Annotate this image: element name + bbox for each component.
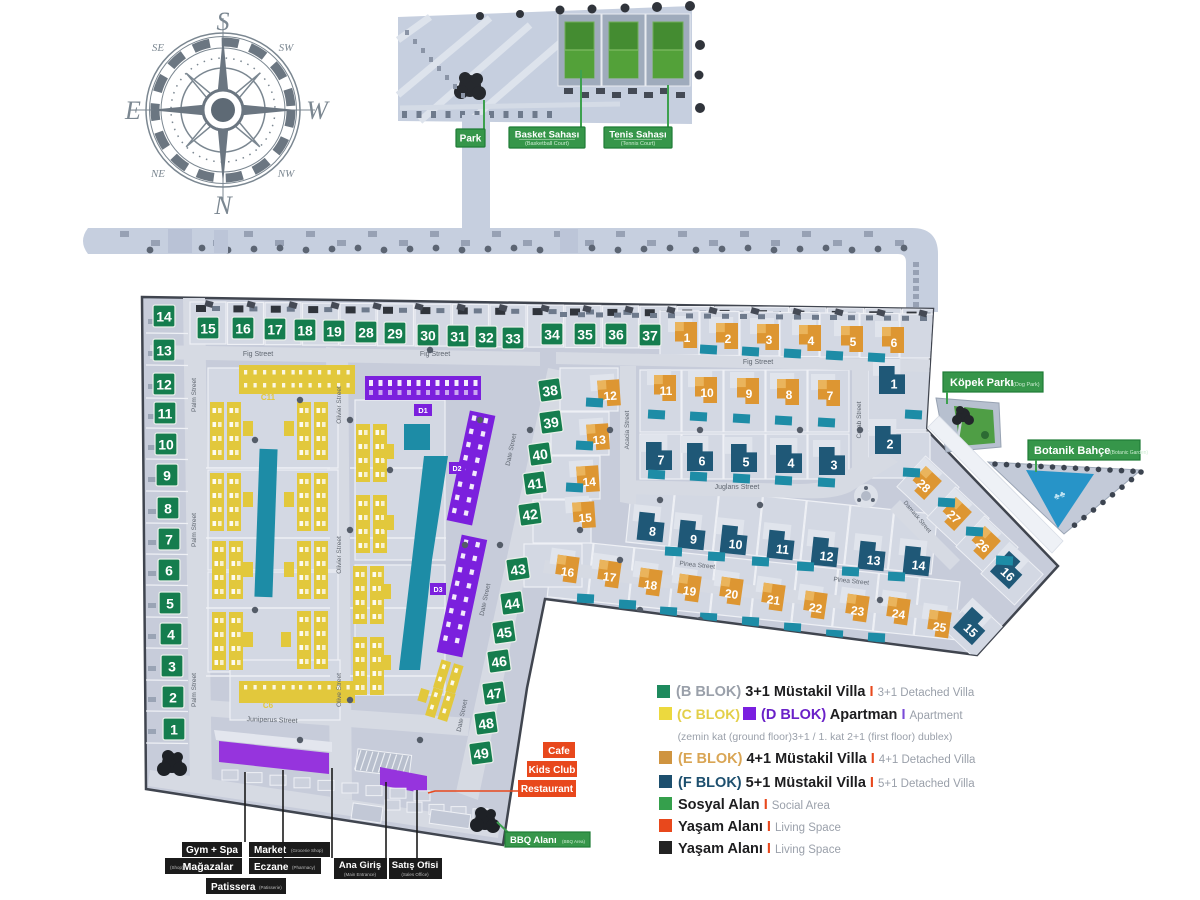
svg-text:(BBQ Area): (BBQ Area) [562, 839, 586, 844]
svg-text:15: 15 [200, 321, 216, 337]
svg-text:40: 40 [531, 446, 549, 464]
svg-text:10: 10 [700, 386, 714, 400]
svg-text:Juglans Street: Juglans Street [715, 484, 760, 491]
svg-text:(Basketball Court): (Basketball Court) [525, 141, 569, 147]
svg-text:(Patisserie): (Patisserie) [259, 885, 282, 890]
svg-text:30: 30 [420, 328, 436, 344]
svg-text:Mağazalar: Mağazalar [183, 861, 234, 873]
svg-text:(Sales Office): (Sales Office) [401, 872, 429, 877]
svg-text:16: 16 [235, 321, 251, 337]
svg-text:34: 34 [544, 327, 560, 343]
svg-text:17: 17 [602, 569, 617, 585]
svg-text:Palm Street: Palm Street [191, 378, 198, 412]
svg-text:31: 31 [450, 329, 466, 345]
svg-text:18: 18 [297, 323, 313, 339]
svg-text:N: N [213, 191, 233, 220]
svg-text:36: 36 [608, 327, 624, 343]
svg-text:9: 9 [746, 387, 753, 401]
svg-text:Botanik Bahçe: Botanik Bahçe [1034, 445, 1110, 457]
svg-text:10: 10 [728, 537, 743, 552]
svg-text:8: 8 [164, 501, 172, 517]
svg-text:12: 12 [603, 388, 618, 403]
svg-text:Kids Club: Kids Club [529, 765, 576, 776]
svg-text:Olivier Street: Olivier Street [336, 386, 343, 424]
svg-text:39: 39 [542, 414, 560, 432]
svg-text:SE: SE [152, 42, 165, 54]
svg-text:(zemin kat (ground floor)3+1 /: (zemin kat (ground floor)3+1 / 1. kat 2+… [678, 731, 953, 743]
svg-text:45: 45 [495, 624, 513, 642]
svg-text:46: 46 [490, 653, 508, 671]
svg-text:37: 37 [642, 328, 658, 344]
svg-text:(E BLOK) 4+1 Müstakil Villa I: (E BLOK) 4+1 Müstakil Villa I 4+1 Detach… [678, 751, 976, 767]
svg-text:12: 12 [819, 549, 834, 564]
svg-text:47: 47 [485, 685, 503, 703]
svg-text:3: 3 [831, 458, 838, 472]
svg-text:C6: C6 [263, 701, 274, 710]
svg-text:10: 10 [158, 437, 174, 453]
svg-text:Yaşam Alanı I Living Space: Yaşam Alanı I Living Space [678, 841, 841, 857]
svg-text:6: 6 [165, 563, 173, 579]
svg-text:5: 5 [743, 455, 750, 469]
svg-text:Palm Street: Palm Street [191, 513, 198, 547]
svg-text:(Pharmacy): (Pharmacy) [292, 865, 316, 870]
svg-text:43: 43 [509, 561, 527, 579]
svg-text:Olivier Street: Olivier Street [336, 536, 343, 574]
svg-text:1: 1 [891, 377, 898, 391]
svg-text:49: 49 [472, 745, 490, 763]
svg-text:C11: C11 [261, 393, 276, 402]
svg-text:(Dog Park): (Dog Park) [1013, 382, 1040, 388]
svg-text:13: 13 [592, 432, 607, 447]
svg-text:14: 14 [911, 558, 926, 573]
svg-text:38: 38 [541, 382, 559, 400]
svg-text:(Grocerie Shop): (Grocerie Shop) [291, 848, 324, 853]
svg-text:24: 24 [891, 606, 906, 622]
svg-text:Olive Street: Olive Street [336, 673, 343, 707]
svg-text:21: 21 [766, 592, 781, 608]
svg-text:5: 5 [166, 596, 174, 612]
svg-text:19: 19 [326, 324, 342, 340]
svg-text:W: W [306, 96, 330, 125]
svg-text:6: 6 [699, 454, 706, 468]
svg-text:9: 9 [163, 468, 171, 484]
svg-text:18: 18 [643, 577, 658, 593]
svg-text:NE: NE [150, 168, 165, 180]
svg-text:(Main Entrance): (Main Entrance) [344, 872, 377, 877]
svg-text:32: 32 [478, 330, 494, 346]
svg-text:2: 2 [169, 690, 177, 706]
svg-text:D1: D1 [418, 406, 428, 415]
svg-text:BBQ Alanı: BBQ Alanı [510, 835, 557, 846]
svg-text:11: 11 [158, 406, 173, 422]
svg-text:2: 2 [725, 332, 732, 346]
svg-text:35: 35 [577, 327, 593, 343]
svg-text:42: 42 [521, 506, 539, 524]
svg-text:2: 2 [887, 437, 894, 451]
svg-text:(Tennis Court): (Tennis Court) [621, 141, 656, 147]
svg-text:E: E [124, 96, 141, 125]
svg-text:28: 28 [358, 325, 374, 341]
svg-text:7: 7 [658, 453, 665, 467]
svg-text:13: 13 [866, 553, 881, 568]
svg-text:(B BLOK) 3+1 Müstakil Villa I: (B BLOK) 3+1 Müstakil Villa I 3+1 Detach… [676, 684, 975, 700]
svg-text:14: 14 [582, 474, 597, 489]
svg-text:Fig Street: Fig Street [743, 359, 773, 366]
svg-text:Restaurant: Restaurant [521, 784, 574, 795]
svg-text:Eczane: Eczane [254, 862, 289, 873]
svg-text:Gym + Spa: Gym + Spa [186, 845, 238, 856]
svg-text:33: 33 [505, 331, 521, 347]
svg-text:15: 15 [578, 510, 593, 525]
svg-text:5: 5 [850, 335, 857, 349]
svg-text:Sosyal Alan I Social Area: Sosyal Alan I Social Area [678, 797, 831, 813]
svg-text:20: 20 [724, 586, 739, 602]
svg-text:Basket Sahası: Basket Sahası [515, 130, 579, 141]
svg-text:(D BLOK) Apartman I Apartment: (D BLOK) Apartman I Apartment [761, 707, 963, 723]
svg-text:16: 16 [560, 564, 575, 580]
svg-text:22: 22 [808, 600, 823, 616]
svg-text:7: 7 [827, 389, 834, 403]
svg-text:Köpek Parkı: Köpek Parkı [950, 377, 1014, 389]
svg-text:Tenis Sahası: Tenis Sahası [609, 130, 666, 141]
svg-text:Fig Street: Fig Street [243, 351, 273, 358]
svg-text:(Botanic Garden): (Botanic Garden) [1110, 450, 1148, 456]
svg-text:Cafe: Cafe [548, 746, 570, 757]
svg-text:48: 48 [477, 715, 495, 733]
svg-text:(C BLOK): (C BLOK) [677, 706, 740, 722]
svg-text:D2: D2 [453, 466, 462, 473]
svg-text:Ana Giriş: Ana Giriş [339, 860, 381, 871]
svg-text:Satış Ofisi: Satış Ofisi [392, 860, 438, 871]
svg-text:D3: D3 [434, 587, 443, 594]
svg-text:11: 11 [660, 384, 673, 398]
svg-text:14: 14 [156, 309, 172, 325]
svg-text:41: 41 [526, 475, 544, 493]
svg-text:6: 6 [891, 336, 898, 350]
svg-text:4: 4 [808, 334, 815, 348]
svg-text:NW: NW [277, 168, 295, 180]
svg-text:Park: Park [460, 134, 482, 145]
svg-text:SW: SW [279, 42, 295, 54]
svg-text:1: 1 [170, 722, 178, 738]
svg-text:1: 1 [684, 331, 691, 345]
svg-text:8: 8 [786, 388, 793, 402]
svg-text:44: 44 [503, 595, 521, 613]
svg-text:17: 17 [267, 322, 283, 338]
svg-text:11: 11 [775, 542, 790, 557]
svg-text:19: 19 [682, 583, 697, 599]
svg-text:3: 3 [766, 333, 773, 347]
svg-text:4: 4 [167, 627, 175, 643]
svg-text:(F BLOK) 5+1 Müstakil Villa I: (F BLOK) 5+1 Müstakil Villa I 5+1 Detach… [678, 775, 975, 791]
svg-text:Fig Street: Fig Street [420, 351, 450, 358]
svg-text:23: 23 [850, 603, 865, 619]
svg-text:Palm Street: Palm Street [191, 673, 198, 707]
svg-text:29: 29 [387, 326, 403, 342]
svg-text:4: 4 [788, 456, 795, 470]
svg-text:S: S [217, 7, 230, 36]
svg-text:7: 7 [165, 532, 173, 548]
svg-text:Market: Market [254, 845, 287, 856]
svg-text:12: 12 [156, 377, 172, 393]
svg-text:25: 25 [932, 619, 947, 635]
svg-text:13: 13 [156, 343, 172, 359]
svg-text:3: 3 [168, 659, 176, 675]
svg-text:Yaşam Alanı I Living Space: Yaşam Alanı I Living Space [678, 819, 841, 835]
svg-text:Acacia Street: Acacia Street [624, 410, 631, 449]
svg-text:Patissera: Patissera [211, 882, 256, 893]
